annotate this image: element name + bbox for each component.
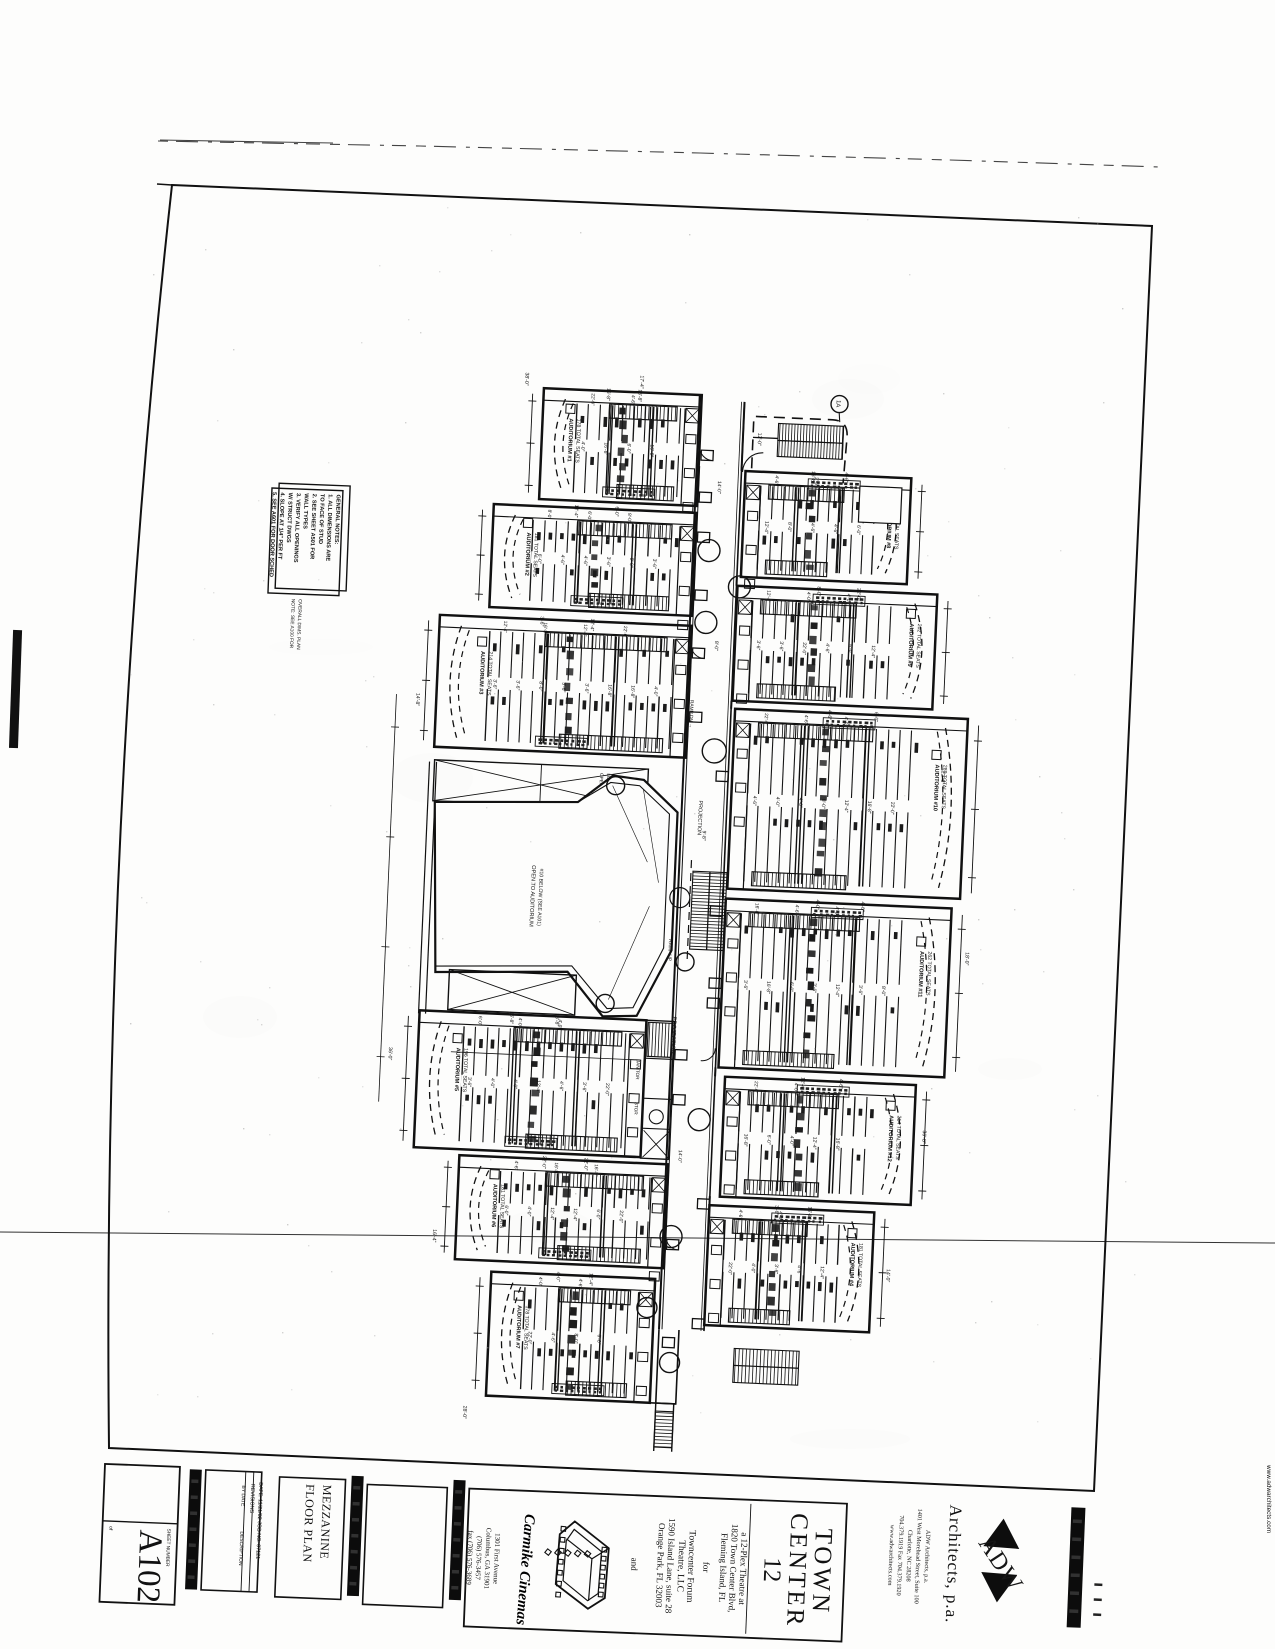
svg-text:4'-6": 4'-6"	[826, 710, 832, 720]
svg-text:3'-6": 3'-6"	[581, 1082, 587, 1092]
svg-text:4'-0": 4'-0"	[489, 1078, 495, 1088]
svg-text:12'-4": 12'-4"	[582, 624, 589, 637]
svg-text:4'-6": 4'-6"	[582, 556, 588, 566]
svg-text:22'-8": 22'-8"	[939, 771, 946, 785]
svg-text:12'-4": 12'-4"	[843, 800, 850, 813]
svg-text:4'-0": 4'-0"	[792, 1083, 798, 1093]
svg-text:6'-0": 6'-0"	[765, 1135, 771, 1145]
svg-text:3'-6": 3'-6"	[811, 983, 817, 993]
svg-text:4'-0": 4'-0"	[750, 1263, 756, 1273]
svg-text:4'-6": 4'-6"	[859, 901, 865, 911]
svg-text:12'-4": 12'-4"	[573, 505, 580, 518]
svg-text:3'-6": 3'-6"	[583, 683, 589, 693]
svg-text:3'-6": 3'-6"	[755, 640, 761, 650]
svg-text:16'-8": 16'-8"	[553, 1013, 560, 1026]
svg-text:4'-6": 4'-6"	[549, 1332, 555, 1342]
svg-text:4'-0": 4'-0"	[512, 1079, 518, 1089]
svg-text:12'-4": 12'-4"	[589, 618, 596, 631]
svg-text:MEZZANINE: MEZZANINE	[317, 1485, 334, 1560]
svg-text:16'-8": 16'-8"	[592, 1164, 599, 1177]
svg-text:22'-0": 22'-0"	[889, 802, 896, 815]
svg-text:12'-4": 12'-4"	[799, 1077, 806, 1090]
svg-text:STOR: STOR	[633, 1102, 639, 1116]
svg-text:12'-4": 12'-4"	[535, 1080, 542, 1093]
svg-text:22'-0": 22'-0"	[621, 626, 628, 639]
svg-text:3'-6": 3'-6"	[773, 1205, 779, 1215]
svg-text:22'-0": 22'-0"	[604, 1083, 611, 1096]
svg-text:3'-6": 3'-6"	[857, 985, 863, 995]
svg-text:12'-4": 12'-4"	[763, 521, 770, 534]
svg-text:4'-0": 4'-0"	[797, 798, 803, 808]
svg-text:4'-6": 4'-6"	[773, 475, 779, 485]
svg-text:14'-0": 14'-0"	[715, 481, 722, 494]
svg-text:12'-0": 12'-0"	[756, 432, 763, 446]
svg-text:9'-8": 9'-8"	[700, 830, 706, 840]
svg-text:38'-0": 38'-0"	[523, 372, 530, 386]
svg-text:36'-8": 36'-8"	[920, 1130, 927, 1144]
svg-text:3'-6": 3'-6"	[605, 557, 611, 567]
svg-text:28'-0": 28'-0"	[461, 1406, 468, 1420]
svg-text:4'-0": 4'-0"	[788, 1136, 794, 1146]
svg-text:22'-0": 22'-0"	[617, 1210, 624, 1223]
svg-text:www.adwarchitects.com: www.adwarchitects.com	[1265, 1464, 1272, 1533]
svg-text:3'-6": 3'-6"	[778, 641, 784, 651]
svg-text:12'-4": 12'-4"	[834, 984, 841, 997]
svg-text:12: 12	[758, 1557, 786, 1583]
svg-text:16'-8": 16'-8"	[606, 684, 613, 697]
svg-text:6'-0": 6'-0"	[595, 1334, 601, 1344]
svg-text:22'-0": 22'-0"	[752, 1081, 759, 1094]
svg-text:4'-6": 4'-6"	[837, 1079, 843, 1089]
svg-text:16'-8": 16'-8"	[648, 444, 655, 457]
svg-text:3'-6": 3'-6"	[538, 616, 544, 626]
svg-text:3'-6": 3'-6"	[560, 682, 566, 692]
svg-text:16'-8": 16'-8"	[806, 1206, 813, 1219]
svg-text:6'-0": 6'-0"	[613, 506, 619, 516]
svg-text:22'-0": 22'-0"	[801, 642, 808, 655]
svg-text:12'-4": 12'-4"	[811, 1137, 818, 1150]
svg-text:6'-0": 6'-0"	[847, 644, 853, 654]
svg-text:16'-8": 16'-8"	[605, 388, 612, 401]
svg-text:16'-8": 16'-8"	[765, 981, 772, 994]
svg-text:3'-6": 3'-6"	[773, 1264, 779, 1274]
svg-text:8'-0": 8'-0"	[572, 1333, 578, 1343]
svg-text:4'-6": 4'-6"	[751, 796, 757, 806]
svg-text:BY DATE: BY DATE	[239, 1485, 246, 1507]
svg-text:36'-0": 36'-0"	[386, 1047, 393, 1061]
svg-text:4'-6": 4'-6"	[558, 1081, 564, 1091]
svg-text:RAMP DN →: RAMP DN →	[687, 700, 694, 728]
svg-text:3'-6": 3'-6"	[514, 680, 520, 690]
svg-text:14'-0": 14'-0"	[884, 1269, 891, 1283]
svg-text:16'-8": 16'-8"	[809, 471, 816, 484]
svg-text:16'-8": 16'-8"	[552, 1162, 559, 1175]
svg-text:12'-4": 12'-4"	[502, 621, 509, 634]
svg-text:4'-0": 4'-0"	[805, 592, 811, 602]
svg-text:8'-0": 8'-0"	[537, 681, 543, 691]
svg-text:4'-0": 4'-0"	[652, 686, 658, 696]
svg-text:4'-0": 4'-0"	[814, 899, 820, 909]
svg-text:14'-0": 14'-0"	[676, 1150, 683, 1163]
svg-text:22'-0": 22'-0"	[540, 1156, 547, 1169]
svg-text:12'-4": 12'-4"	[587, 1273, 594, 1286]
svg-text:4'-6": 4'-6"	[803, 715, 809, 725]
svg-text:8'-0": 8'-0"	[820, 799, 826, 809]
svg-text:17'-4": 17'-4"	[638, 375, 645, 389]
svg-text:REVISIONS: REVISIONS	[248, 1484, 255, 1514]
svg-text:6'-0": 6'-0"	[625, 443, 631, 453]
svg-text:4'-6": 4'-6"	[513, 1161, 519, 1171]
svg-text:JANITOR: JANITOR	[635, 1060, 641, 1080]
svg-text:8'-0": 8'-0"	[786, 522, 792, 532]
svg-text:6'-0": 6'-0"	[595, 1209, 601, 1219]
svg-text:8'-0": 8'-0"	[713, 641, 719, 651]
svg-text:6'-0": 6'-0"	[855, 525, 861, 535]
svg-text:RAMP UP: RAMP UP	[666, 939, 673, 961]
svg-text:16'-8": 16'-8"	[753, 903, 760, 916]
svg-text:22'-0": 22'-0"	[582, 1158, 589, 1171]
svg-text:16'-8": 16'-8"	[602, 442, 609, 455]
svg-text:8'-0": 8'-0"	[628, 558, 634, 568]
svg-text:16'-8": 16'-8"	[508, 1011, 515, 1024]
svg-text:4'-6": 4'-6"	[629, 395, 635, 405]
svg-text:4'-6": 4'-6"	[795, 1265, 801, 1275]
svg-text:14'-8": 14'-8"	[414, 693, 421, 707]
svg-text:3'-6": 3'-6"	[651, 559, 657, 569]
svg-text:12'-4": 12'-4"	[765, 590, 772, 603]
svg-text:6'-0": 6'-0"	[586, 511, 592, 521]
svg-text:8'-0": 8'-0"	[815, 586, 821, 596]
svg-text:for: for	[701, 1562, 711, 1573]
svg-text:8'-0": 8'-0"	[626, 513, 632, 523]
svg-text:16'-8": 16'-8"	[629, 685, 636, 698]
svg-text:6'-0": 6'-0"	[788, 982, 794, 992]
svg-text:4'-6": 4'-6"	[824, 643, 830, 653]
svg-text:4'-6": 4'-6"	[832, 524, 838, 534]
svg-text:16'-4": 16'-4"	[431, 1229, 438, 1243]
svg-text:4'-0": 4'-0"	[516, 1018, 522, 1028]
svg-text:16'-8": 16'-8"	[866, 801, 873, 814]
svg-text:22'-0": 22'-0"	[589, 393, 596, 406]
svg-text:22'-0": 22'-0"	[855, 588, 862, 601]
svg-text:18'-0": 18'-0"	[963, 952, 970, 966]
svg-text:12'-4": 12'-4"	[818, 1266, 825, 1279]
svg-text:4'-6": 4'-6"	[577, 1278, 583, 1288]
svg-text:4'-0": 4'-0"	[537, 1277, 543, 1287]
svg-text:4'-6": 4'-6"	[793, 905, 799, 915]
svg-text:4'-6": 4'-6"	[737, 1209, 743, 1219]
svg-text:16'-8": 16'-8"	[742, 1134, 749, 1147]
svg-text:4'-6": 4'-6"	[559, 555, 565, 565]
svg-text:4'-6": 4'-6"	[809, 523, 815, 533]
svg-text:22'-0": 22'-0"	[726, 1262, 733, 1275]
svg-text:3'-6": 3'-6"	[742, 980, 748, 990]
svg-text:A102: A102	[129, 1529, 168, 1604]
svg-text:16'-8": 16'-8"	[636, 389, 643, 402]
svg-text:6'-0": 6'-0"	[476, 1016, 482, 1026]
svg-text:8'-0": 8'-0"	[880, 986, 886, 996]
svg-text:4'-0": 4'-0"	[555, 1272, 561, 1282]
svg-text:22'-0": 22'-0"	[762, 713, 769, 726]
svg-text:8'-0": 8'-0"	[546, 509, 552, 519]
svg-text:6'-0": 6'-0"	[872, 712, 878, 722]
svg-text:16'-8": 16'-8"	[834, 1138, 841, 1151]
svg-text:4'-0": 4'-0"	[774, 797, 780, 807]
svg-text:and: and	[629, 1558, 640, 1572]
svg-text:12'-4": 12'-4"	[869, 645, 876, 658]
